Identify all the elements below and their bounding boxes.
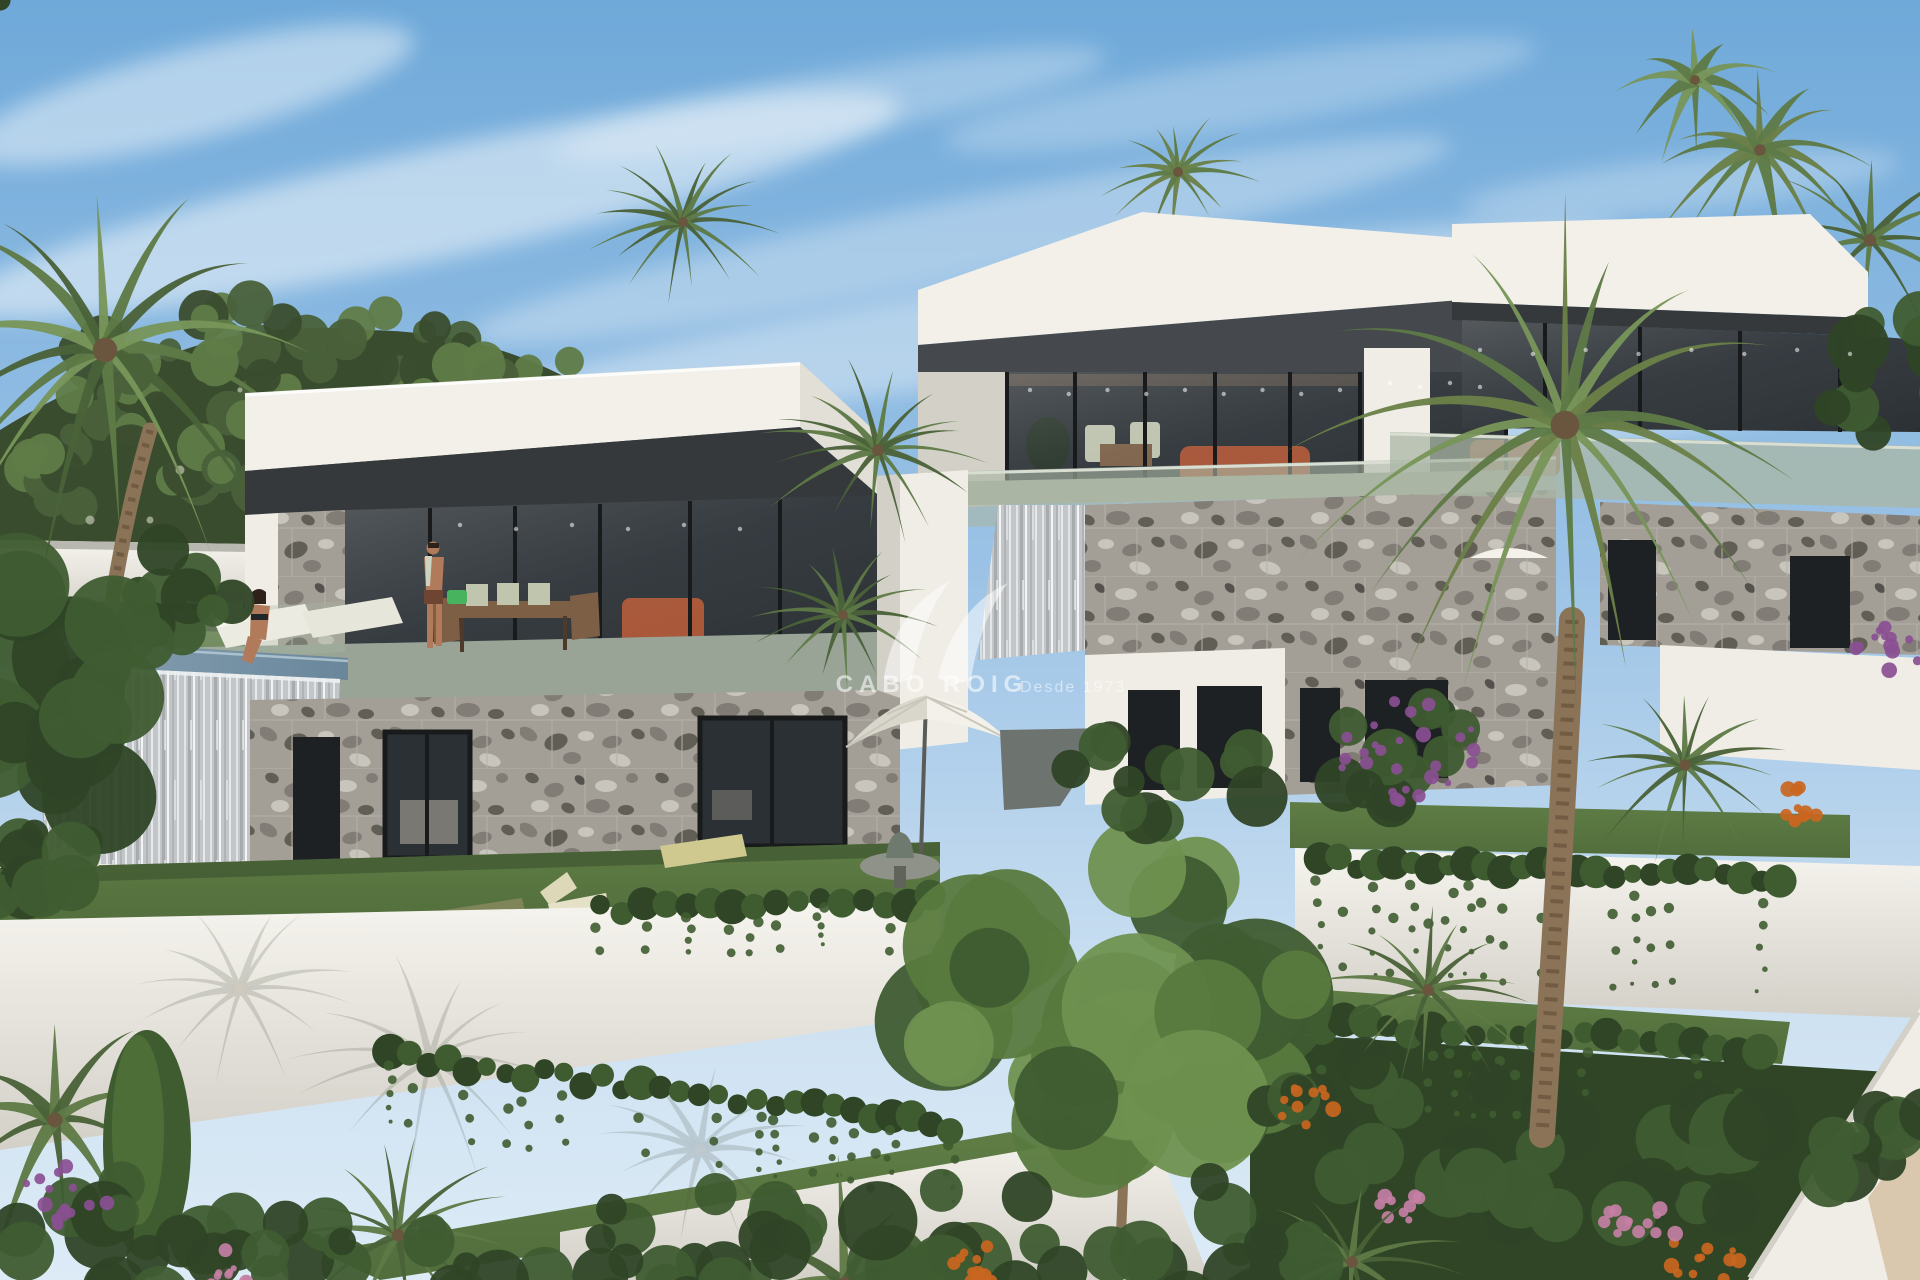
rock-fleck <box>86 516 95 525</box>
watermark-tagline: Desde 1973 <box>1020 679 1126 696</box>
villa1-glass-gloss <box>345 495 877 657</box>
chair <box>497 583 519 605</box>
bag <box>447 590 467 604</box>
bedroom-door-b <box>700 718 845 846</box>
villa2-waterfall <box>978 505 1092 660</box>
rock-fleck <box>147 517 154 524</box>
scene: CABO ROIG Desde 1973 <box>0 0 1920 1280</box>
architectural-render: CABO ROIG Desde 1973 <box>0 0 1920 1280</box>
chair <box>466 584 488 606</box>
bedroom-door-a <box>385 732 470 858</box>
villa3-window <box>1790 556 1850 648</box>
chair-glimpse <box>712 790 752 820</box>
rock-fleck <box>238 388 243 393</box>
doorway <box>293 737 340 864</box>
villa3-roof <box>1452 214 1868 318</box>
watermark-brand: CABO ROIG <box>836 671 1029 698</box>
end-chair <box>570 592 600 640</box>
pool-side-bush <box>0 818 103 919</box>
villa3-window <box>1608 540 1656 640</box>
chair <box>528 583 550 605</box>
